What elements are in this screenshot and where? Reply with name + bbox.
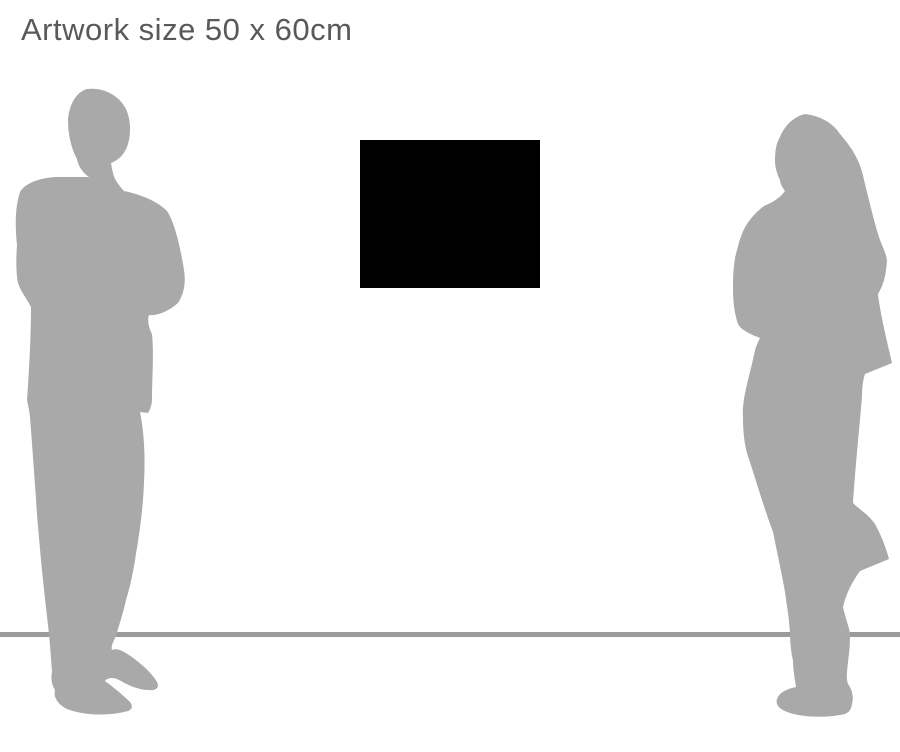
size-guide-canvas: Artwork size 50 x 60cm — [0, 0, 900, 752]
man-silhouette-shape — [16, 89, 185, 715]
woman-silhouette — [728, 112, 894, 720]
man-silhouette — [15, 87, 190, 719]
woman-silhouette-shape — [733, 114, 892, 717]
artwork-rectangle — [360, 140, 540, 288]
artwork-size-title: Artwork size 50 x 60cm — [21, 12, 352, 48]
